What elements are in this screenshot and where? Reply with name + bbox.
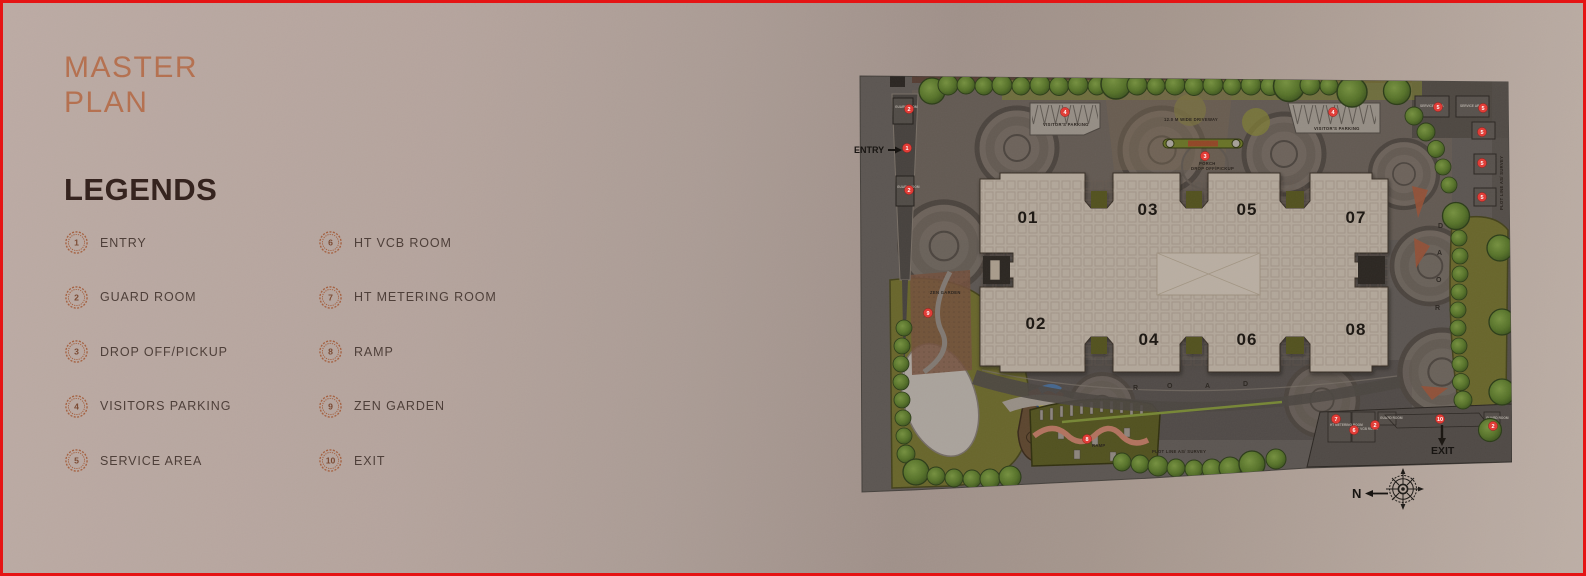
legend-label: HT VCB ROOM: [354, 236, 452, 250]
legend-label: DROP OFF/PICKUP: [100, 345, 228, 359]
legend-label: RAMP: [354, 345, 394, 359]
legend-badge-icon: 1: [64, 230, 89, 255]
svg-text:2: 2: [1491, 424, 1494, 430]
legend-column-2: 6 HT VCB ROOM 7 HT METERING ROOM 8 RAMP …: [318, 230, 568, 503]
legend-label: EXIT: [354, 454, 385, 468]
legend-item-guard-room: 2 GUARD ROOM: [64, 285, 314, 310]
page-title: MASTER PLAN: [64, 50, 198, 120]
legend-label: HT METERING ROOM: [354, 290, 497, 304]
svg-text:2: 2: [1373, 423, 1376, 429]
svg-text:ENTRY: ENTRY: [854, 145, 884, 155]
master-plan-page: { "page": { "title_line1": "MASTER", "ti…: [0, 0, 1586, 576]
legend-item-drop-off: 3 DROP OFF/PICKUP: [64, 339, 314, 364]
legend-label: ENTRY: [100, 236, 147, 250]
page-title-line2: PLAN: [64, 85, 198, 120]
legend-item-ht-vcb: 6 HT VCB ROOM: [318, 230, 568, 255]
svg-text:9: 9: [926, 311, 929, 317]
svg-text:9: 9: [328, 401, 333, 411]
svg-text:2: 2: [907, 188, 910, 194]
legend-badge-icon: 3: [64, 339, 89, 364]
legend-label: SERVICE AREA: [100, 454, 202, 468]
svg-text:10: 10: [326, 456, 336, 466]
legend-badge-icon: 10: [318, 448, 343, 473]
svg-text:3: 3: [74, 347, 79, 357]
legend-badge-icon: 6: [318, 230, 343, 255]
legend-item-exit: 10 EXIT: [318, 448, 568, 473]
svg-text:8: 8: [1085, 437, 1088, 443]
legend-item-ht-metering: 7 HT METERING ROOM: [318, 285, 568, 310]
svg-text:7: 7: [328, 292, 333, 302]
svg-text:1: 1: [74, 238, 79, 248]
svg-text:3: 3: [1203, 154, 1206, 160]
legend-item-ramp: 8 RAMP: [318, 339, 568, 364]
legend-item-zen-garden: 9 ZEN GARDEN: [318, 394, 568, 419]
svg-text:2: 2: [907, 107, 910, 113]
svg-text:5: 5: [74, 456, 79, 466]
svg-text:5: 5: [1480, 195, 1483, 201]
legends-heading: LEGENDS: [64, 172, 217, 208]
legend-item-entry: 1 ENTRY: [64, 230, 314, 255]
svg-text:4: 4: [74, 401, 79, 411]
svg-text:6: 6: [328, 238, 333, 248]
legend-label: ZEN GARDEN: [354, 399, 445, 413]
legend-badge-icon: 7: [318, 285, 343, 310]
svg-text:5: 5: [1436, 105, 1439, 111]
compass-icon: N: [1352, 468, 1424, 510]
legend-badge-icon: 9: [318, 394, 343, 419]
svg-text:2: 2: [74, 292, 79, 302]
page-title-line1: MASTER: [64, 50, 198, 85]
svg-text:5: 5: [1481, 106, 1484, 112]
svg-text:8: 8: [328, 347, 333, 357]
legend-badge-icon: 2: [64, 285, 89, 310]
svg-text:5: 5: [1480, 130, 1483, 136]
master-plan-image: ZEN GARDEN RAMP R O: [852, 70, 1512, 510]
svg-text:7: 7: [1334, 417, 1337, 423]
legend-item-service-area: 5 SERVICE AREA: [64, 448, 314, 473]
svg-text:5: 5: [1480, 161, 1483, 167]
svg-text:6: 6: [1352, 428, 1355, 434]
legend-label: VISITORS PARKING: [100, 399, 231, 413]
svg-text:1: 1: [905, 146, 908, 152]
legend-badge-icon: 5: [64, 448, 89, 473]
legend-column-1: 1 ENTRY 2 GUARD ROOM 3 DROP OFF/PICKUP 4…: [64, 230, 314, 503]
north-label: N: [1352, 486, 1361, 501]
legend-label: GUARD ROOM: [100, 290, 197, 304]
exit-label: EXIT: [1431, 445, 1455, 457]
legend-badge-icon: 4: [64, 394, 89, 419]
svg-text:10: 10: [1437, 417, 1443, 423]
legend-item-visitors-parking: 4 VISITORS PARKING: [64, 394, 314, 419]
legend-badge-icon: 8: [318, 339, 343, 364]
